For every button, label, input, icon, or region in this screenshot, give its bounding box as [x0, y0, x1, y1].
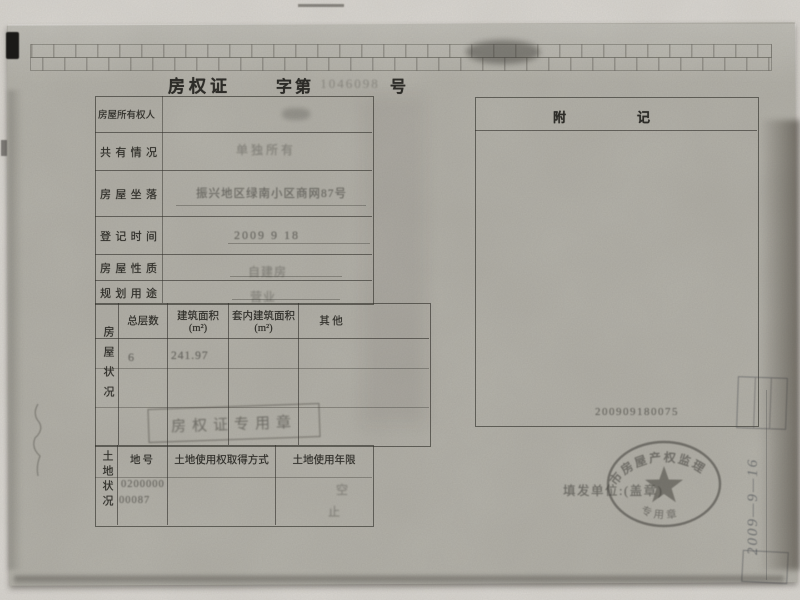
land-header-parcel: 地号 [118, 452, 167, 467]
building-header-inner-area: 套内建筑面积 (m²) [229, 308, 298, 334]
scan-artifact-dash [1, 140, 7, 156]
torn-edge-mark [298, 4, 344, 7]
ink-smudge [466, 40, 540, 64]
rect-office-stamp: 房权证专用章 [147, 403, 320, 443]
row-line-3 [95, 216, 372, 217]
building-value-floors: 6 [128, 350, 134, 365]
annex-header-right: 记 [637, 107, 650, 126]
certificate-title: 房权证 [168, 72, 231, 97]
annex-box [475, 97, 759, 427]
land-parcel-no-line2: 00087 [119, 495, 150, 506]
land-side-label: 土地状况 [99, 450, 115, 518]
certificate-serial: 1046098 [314, 76, 386, 92]
field-label-coownership: 共有情况 [100, 144, 157, 160]
round-official-seal: 市房屋产权监理 专用章 [596, 432, 736, 540]
field-value-coownership: 单独所有 [236, 141, 296, 158]
left-edge-shadow [8, 90, 22, 570]
annex-number: 200909180075 [595, 406, 679, 418]
building-value-area: 241.97 [171, 350, 209, 362]
annex-header-left: 附 [553, 107, 566, 126]
title-zidi: 字第 [276, 73, 314, 97]
field-value-nature: 自建房 [248, 263, 287, 280]
field-label-regdate: 登记时间 [100, 228, 157, 244]
right-edge-shadow [760, 120, 800, 570]
owner-name-smudge [282, 108, 310, 120]
seal-star-icon [645, 466, 683, 502]
field-value-regdate: 2009 9 18 [234, 228, 300, 243]
field-label-owner: 房屋所有权人 [98, 107, 159, 121]
field-label-location: 房屋坐落 [100, 186, 157, 202]
building-header-other: 其 他 [300, 313, 362, 328]
building-header-line [95, 338, 429, 339]
write-line [232, 299, 340, 300]
seal-arc-bottom-text: 专用章 [639, 504, 680, 522]
write-line [228, 243, 370, 244]
scanned-certificate-photo: 房权证 字第 1046098 号 房屋所有权人 共有情况 房屋坐落 登记时间 房… [0, 0, 800, 600]
land-header-line [95, 477, 372, 478]
fields-label-divider [162, 96, 163, 303]
write-line [230, 276, 342, 277]
row-line-1 [95, 132, 372, 133]
building-row-line-1 [95, 368, 429, 369]
land-term-note-top: 空 [336, 481, 348, 498]
row-line-2 [95, 170, 372, 171]
row-line-5 [95, 280, 372, 281]
row-line-4 [95, 254, 372, 255]
bottom-edge-shadow [14, 576, 784, 586]
title-hao: 号 [390, 73, 406, 97]
land-term-note-bottom: 止 [328, 503, 340, 520]
rect-stamp-text: 房权证专用章 [149, 410, 320, 437]
annex-header-line [475, 130, 757, 131]
scan-artifact-blob [6, 32, 19, 59]
land-header-acquisition: 土地使用权取得方式 [168, 452, 275, 467]
building-header-floors: 总层数 [119, 313, 167, 328]
write-line [176, 205, 366, 206]
land-parcel-no-line1: 0200000 [121, 479, 165, 490]
field-label-nature: 房屋性质 [100, 260, 157, 276]
margin-scribble [26, 400, 50, 490]
building-side-label: 房屋状况 [100, 326, 116, 422]
svg-text:专用章: 专用章 [639, 504, 680, 522]
field-value-location: 振兴地区绿南小区商网87号 [196, 185, 347, 201]
land-header-term: 土地使用年限 [276, 452, 372, 467]
field-label-use: 规划用途 [100, 285, 157, 301]
decorative-border [30, 44, 772, 71]
building-header-area: 建筑面积 (m²) [168, 308, 228, 334]
